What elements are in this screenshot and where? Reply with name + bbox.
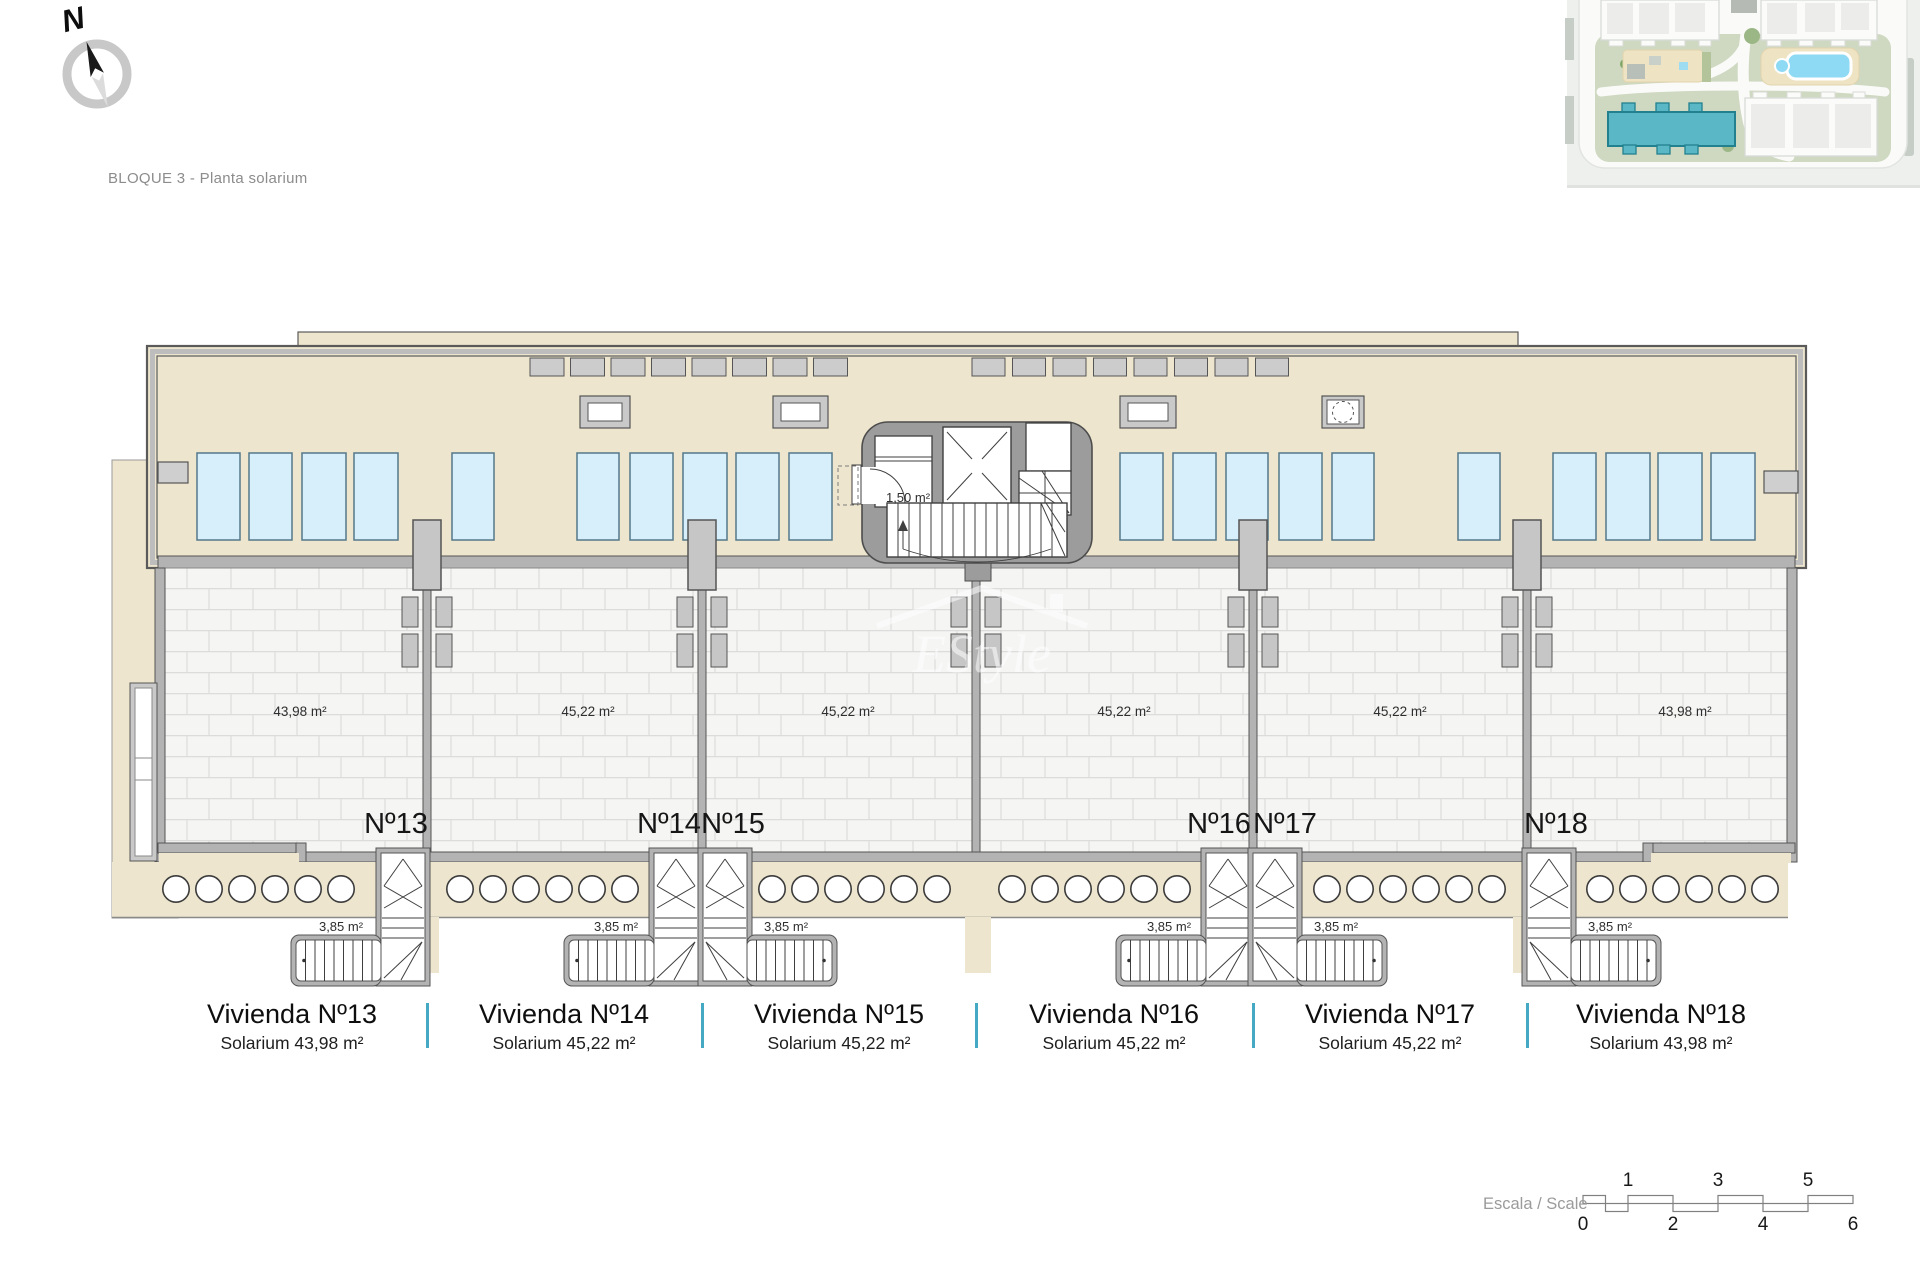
stair-core (838, 422, 1092, 581)
scale-tick: 4 (1758, 1214, 1769, 1236)
vivienda-name: Vivienda Nº16 (1029, 999, 1199, 1030)
unit-area-label: 45,22 m² (1097, 704, 1150, 719)
stair-area-label: 3,85 m² (1147, 919, 1191, 934)
scale-label: Escala / Scale (1483, 1195, 1588, 1214)
scale-tick: 3 (1713, 1170, 1724, 1192)
scale-bar (1583, 1196, 1853, 1212)
vivienda-caption: Vivienda Nº14 Solarium 45,22 m² (479, 999, 649, 1054)
vivienda-solarium: Solarium 45,22 m² (754, 1033, 924, 1054)
caption-divider (426, 1003, 429, 1048)
inset-building (1745, 92, 1877, 156)
inset-building (1761, 0, 1877, 46)
scale-tick: 5 (1803, 1170, 1814, 1192)
inset-playground (1623, 50, 1711, 82)
unit-area-label: 43,98 m² (1658, 704, 1711, 719)
watermark-text: EStyle (842, 630, 1122, 678)
vivienda-caption: Vivienda Nº15 Solarium 45,22 m² (754, 999, 924, 1054)
caption-divider (1526, 1003, 1529, 1048)
unit-number-label: Nº14 (637, 808, 701, 841)
site-plan-inset (1565, 0, 1920, 188)
vivienda-caption: Vivienda Nº13 Solarium 43,98 m² (207, 999, 377, 1054)
unit-number-label: Nº13 (364, 808, 428, 841)
unit-area-label: 43,98 m² (273, 704, 326, 719)
stair-area-label: 3,85 m² (594, 919, 638, 934)
vivienda-name: Vivienda Nº18 (1576, 999, 1746, 1030)
vivienda-solarium: Solarium 45,22 m² (1029, 1033, 1199, 1054)
caption-divider (701, 1003, 704, 1048)
page-title: BLOQUE 3 - Planta solarium (108, 170, 308, 187)
unit-area-label: 45,22 m² (1373, 704, 1426, 719)
stair-area-label: 3,85 m² (1314, 919, 1358, 934)
stair-area-label: 3,85 m² (319, 919, 363, 934)
roof-fan-unit (1322, 396, 1364, 428)
vivienda-caption: Vivienda Nº17 Solarium 45,22 m² (1305, 999, 1475, 1054)
stairwell-area-label: 1,50 m² (886, 490, 930, 505)
caption-divider (975, 1003, 978, 1048)
floor-plan-page: N BLOQUE 3 - Planta solarium 1,50 m² 43,… (0, 0, 1920, 1280)
vivienda-name: Vivienda Nº15 (754, 999, 924, 1030)
scale-tick: 0 (1578, 1214, 1589, 1236)
vivienda-solarium: Solarium 45,22 m² (1305, 1033, 1475, 1054)
vivienda-name: Vivienda Nº17 (1305, 999, 1475, 1030)
unit-number-label: Nº18 (1524, 808, 1588, 841)
unit-area-label: 45,22 m² (821, 704, 874, 719)
scale-tick: 1 (1623, 1170, 1634, 1192)
watermark-roof-icon (842, 578, 1122, 630)
vivienda-name: Vivienda Nº14 (479, 999, 649, 1030)
unit-number-label: Nº17 (1253, 808, 1317, 841)
vivienda-caption: Vivienda Nº16 Solarium 45,22 m² (1029, 999, 1199, 1054)
unit-number-label: Nº16 (1187, 808, 1251, 841)
vivienda-solarium: Solarium 43,98 m² (207, 1033, 377, 1054)
vivienda-caption: Vivienda Nº18 Solarium 43,98 m² (1576, 999, 1746, 1054)
vivienda-solarium: Solarium 45,22 m² (479, 1033, 649, 1054)
vivienda-name: Vivienda Nº13 (207, 999, 377, 1030)
stair-area-label: 3,85 m² (764, 919, 808, 934)
watermark: EStyle (842, 578, 1122, 678)
vivienda-solarium: Solarium 43,98 m² (1576, 1033, 1746, 1054)
compass-icon (67, 40, 127, 110)
scale-tick: 2 (1668, 1214, 1679, 1236)
stair-area-label: 3,85 m² (1588, 919, 1632, 934)
scale-tick: 6 (1848, 1214, 1859, 1236)
unit-number-label: Nº15 (701, 808, 765, 841)
caption-divider (1252, 1003, 1255, 1048)
inset-pool (1761, 48, 1859, 85)
unit-area-label: 45,22 m² (561, 704, 614, 719)
inset-building (1601, 0, 1719, 46)
